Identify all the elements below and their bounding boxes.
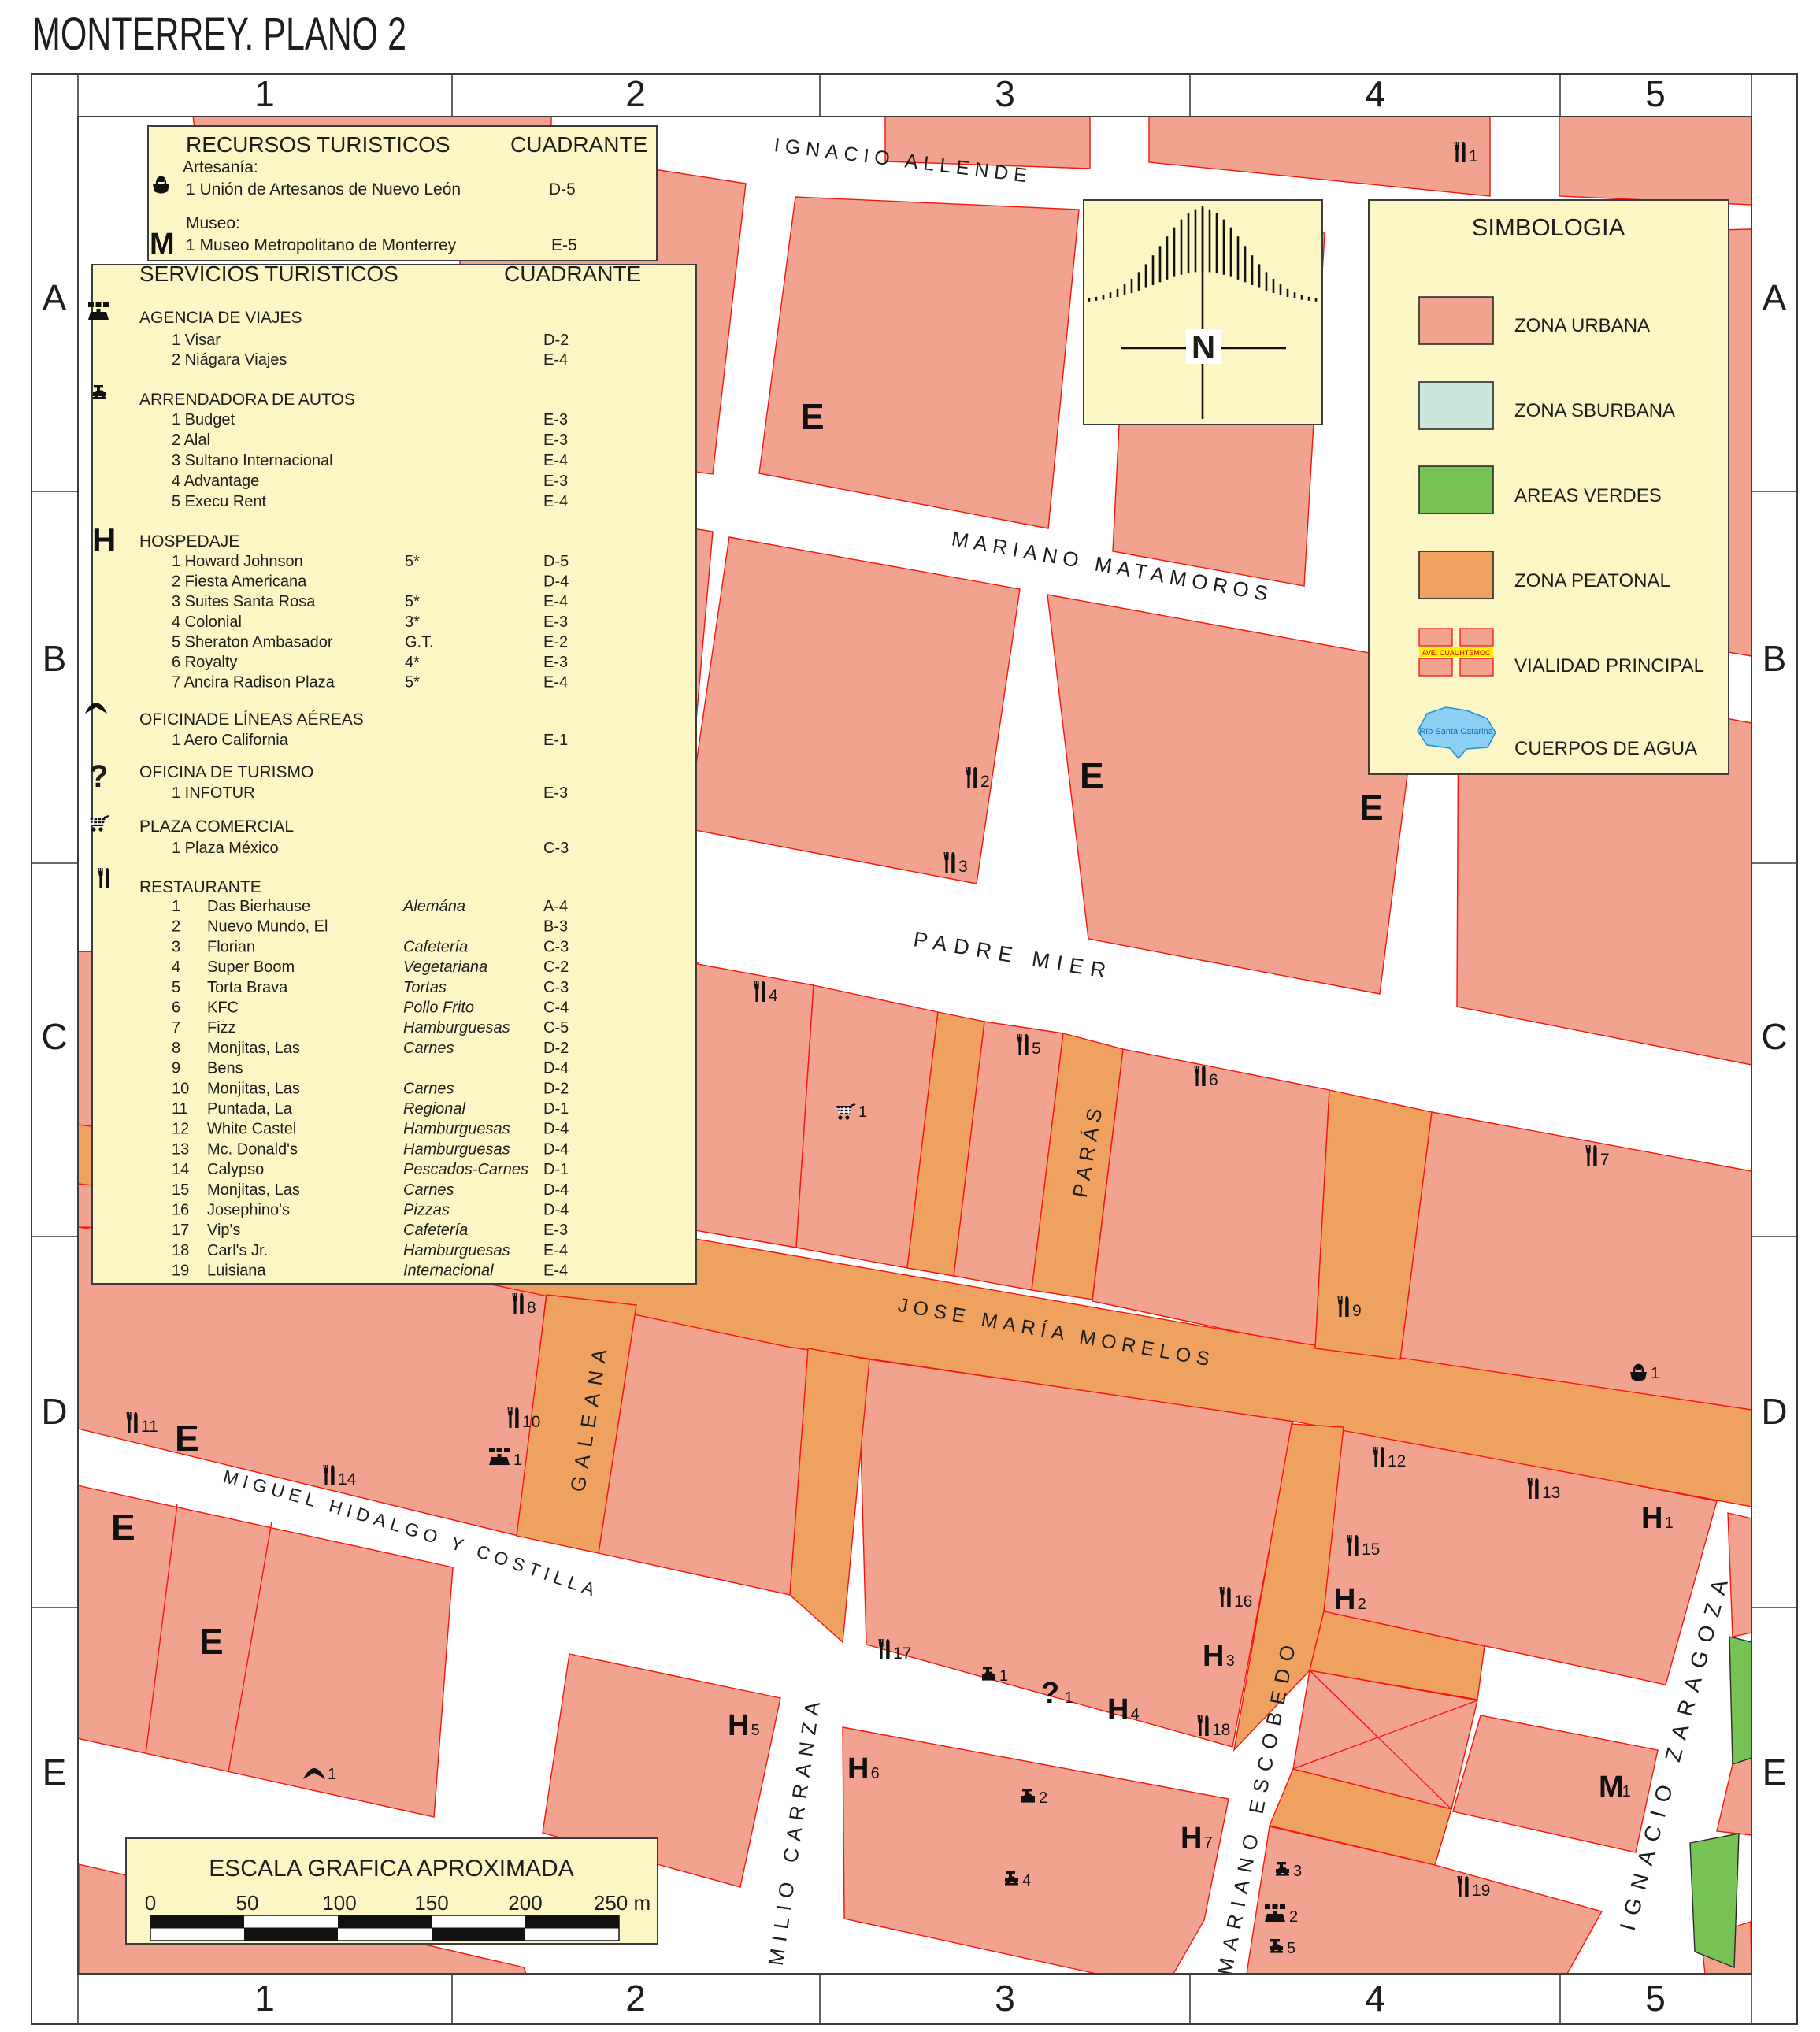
svg-text:16: 16: [172, 1202, 189, 1219]
svg-text:OFICINADE LÍNEAS AÉREAS: OFICINADE LÍNEAS AÉREAS: [139, 710, 364, 729]
svg-text:1: 1: [1665, 1515, 1674, 1532]
svg-text:5*: 5*: [405, 674, 420, 692]
svg-text:E-3: E-3: [543, 473, 568, 490]
svg-text:H: H: [1181, 1822, 1202, 1855]
svg-text:Museo:: Museo:: [186, 214, 240, 232]
svg-text:D-2: D-2: [543, 332, 569, 349]
svg-text:KFC: KFC: [207, 999, 239, 1017]
svg-text:18: 18: [172, 1242, 189, 1259]
svg-text:D-4: D-4: [543, 1121, 569, 1138]
svg-text:AREAS VERDES: AREAS VERDES: [1514, 485, 1662, 506]
svg-text:4 Colonial: 4 Colonial: [172, 614, 242, 631]
svg-text:13: 13: [1542, 1484, 1560, 1502]
svg-text:N: N: [1192, 328, 1215, 365]
svg-text:ZONA PEATONAL: ZONA PEATONAL: [1514, 570, 1670, 591]
svg-text:4: 4: [769, 987, 778, 1005]
svg-text:7: 7: [172, 1019, 180, 1036]
svg-text:Cafetería: Cafetería: [403, 1222, 468, 1239]
svg-text:1: 1: [254, 1978, 275, 2019]
svg-text:E: E: [175, 1418, 199, 1459]
svg-text:Pescados-Carnes: Pescados-Carnes: [403, 1161, 528, 1178]
svg-text:RECURSOS TURISTICOS: RECURSOS TURISTICOS: [186, 132, 450, 157]
svg-text:50: 50: [236, 1891, 259, 1915]
svg-text:15: 15: [1362, 1541, 1380, 1559]
svg-text:SERVICIOS TURISTICOS: SERVICIOS TURISTICOS: [139, 261, 398, 286]
svg-text:1 Aero California: 1 Aero California: [172, 732, 289, 749]
svg-text:Florian: Florian: [207, 938, 255, 955]
svg-text:H: H: [1334, 1583, 1355, 1616]
svg-text:19: 19: [1472, 1882, 1490, 1900]
svg-text:6: 6: [172, 999, 180, 1017]
svg-text:Josephino's: Josephino's: [207, 1202, 290, 1219]
svg-text:Monjitas, Las: Monjitas, Las: [207, 1181, 300, 1199]
svg-text:14: 14: [172, 1161, 189, 1178]
svg-text:7: 7: [1600, 1151, 1610, 1169]
svg-text:4: 4: [1131, 1706, 1140, 1723]
svg-text:Monjitas, Las: Monjitas, Las: [207, 1080, 300, 1097]
svg-text:11: 11: [141, 1418, 158, 1436]
svg-text:ESCALA GRAFICA APROXIMADA: ESCALA GRAFICA APROXIMADA: [209, 1856, 573, 1882]
svg-text:E-3: E-3: [543, 432, 568, 449]
svg-text:5: 5: [172, 979, 180, 996]
svg-text:1: 1: [254, 73, 275, 114]
svg-text:Mc. Donald's: Mc. Donald's: [207, 1140, 298, 1158]
svg-text:M: M: [150, 228, 175, 261]
svg-text:CUADRANTE: CUADRANTE: [504, 261, 641, 286]
svg-text:5: 5: [1645, 73, 1666, 114]
svg-text:8: 8: [527, 1299, 536, 1317]
svg-text:9: 9: [172, 1060, 180, 1077]
svg-text:Das Bierhause: Das Bierhause: [207, 898, 310, 915]
svg-text:1: 1: [1622, 1783, 1631, 1800]
svg-text:C-4: C-4: [543, 999, 569, 1017]
svg-text:10: 10: [172, 1080, 189, 1097]
svg-text:4: 4: [1365, 1978, 1385, 2019]
svg-text:A: A: [1763, 277, 1787, 318]
svg-text:C: C: [1761, 1016, 1787, 1057]
svg-text:1 Budget: 1 Budget: [172, 411, 235, 428]
svg-text:E-5: E-5: [551, 236, 577, 254]
svg-text:5: 5: [1287, 1940, 1295, 1957]
svg-text:E-4: E-4: [543, 351, 568, 369]
svg-text:D-4: D-4: [543, 573, 569, 591]
svg-text:E-4: E-4: [543, 452, 568, 469]
svg-text:12: 12: [172, 1121, 189, 1138]
svg-text:2: 2: [1289, 1908, 1298, 1926]
svg-text:Bens: Bens: [207, 1060, 243, 1077]
svg-text:E-4: E-4: [543, 674, 568, 692]
svg-text:SIMBOLOGIA: SIMBOLOGIA: [1472, 213, 1625, 241]
svg-text:Artesanía:: Artesanía:: [183, 158, 258, 176]
svg-text:A: A: [43, 277, 67, 318]
svg-text:1: 1: [513, 1452, 522, 1469]
svg-text:3: 3: [995, 1978, 1015, 2019]
svg-text:8: 8: [172, 1040, 180, 1057]
svg-text:Hamburguesas: Hamburguesas: [403, 1019, 510, 1036]
svg-text:12: 12: [1388, 1452, 1406, 1470]
svg-text:H: H: [1107, 1693, 1129, 1726]
svg-text:17: 17: [172, 1222, 189, 1239]
svg-text:E-4: E-4: [543, 1263, 568, 1280]
svg-text:Hamburguesas: Hamburguesas: [403, 1140, 510, 1158]
svg-text:White Castel: White Castel: [207, 1121, 296, 1138]
svg-text:5 Sheraton Ambasador: 5 Sheraton Ambasador: [172, 633, 333, 651]
svg-text:E: E: [43, 1752, 67, 1793]
svg-text:Calypso: Calypso: [207, 1161, 264, 1178]
svg-text:HOSPEDAJE: HOSPEDAJE: [139, 532, 239, 551]
svg-text:E-3: E-3: [543, 411, 568, 428]
svg-text:Pollo Frito: Pollo Frito: [403, 999, 474, 1017]
svg-text:200: 200: [508, 1891, 542, 1915]
svg-text:1 Museo Metropolitano de Monte: 1 Museo Metropolitano de Monterrey: [186, 236, 457, 254]
svg-text:D-4: D-4: [543, 1140, 569, 1158]
svg-text:Pizzas: Pizzas: [403, 1202, 450, 1219]
svg-text:E-4: E-4: [543, 1242, 568, 1259]
svg-text:AVE. CUAUHTEMOC: AVE. CUAUHTEMOC: [1422, 649, 1491, 657]
svg-text:2: 2: [172, 918, 180, 936]
svg-text:E-3: E-3: [543, 784, 568, 802]
svg-text:D: D: [1761, 1391, 1787, 1432]
svg-text:Tortas: Tortas: [403, 979, 447, 996]
svg-text:2: 2: [625, 73, 646, 114]
svg-text:1: 1: [172, 898, 180, 915]
svg-text:D-1: D-1: [543, 1100, 569, 1118]
svg-text:Carnes: Carnes: [403, 1080, 454, 1097]
svg-text:Alemána: Alemána: [402, 898, 465, 915]
svg-text:D-5: D-5: [549, 180, 576, 198]
svg-text:D-4: D-4: [543, 1202, 569, 1219]
svg-text:11: 11: [172, 1100, 188, 1118]
svg-text:ZONA URBANA: ZONA URBANA: [1514, 315, 1650, 336]
svg-text:B-3: B-3: [543, 918, 568, 936]
svg-text:OFICINA DE TURISMO: OFICINA DE TURISMO: [139, 763, 313, 781]
svg-text:C-5: C-5: [543, 1019, 569, 1036]
svg-text:3: 3: [995, 73, 1015, 114]
svg-text:2 Fiesta Americana: 2 Fiesta Americana: [172, 573, 307, 591]
svg-text:3: 3: [172, 938, 180, 955]
svg-text:100: 100: [322, 1891, 356, 1915]
svg-text:5 Execu Rent: 5 Execu Rent: [172, 493, 267, 510]
svg-text:C: C: [41, 1016, 67, 1057]
svg-text:Fizz: Fizz: [207, 1019, 236, 1036]
svg-text:E: E: [199, 1621, 224, 1662]
svg-text:19: 19: [172, 1263, 189, 1280]
svg-text:1: 1: [328, 1766, 336, 1783]
svg-text:6 Royalty: 6 Royalty: [172, 654, 237, 671]
svg-text:C-3: C-3: [543, 938, 569, 955]
svg-text:E-3: E-3: [543, 1222, 568, 1239]
svg-text:2: 2: [1358, 1596, 1366, 1613]
svg-text:1: 1: [1065, 1689, 1073, 1707]
svg-text:E: E: [800, 396, 825, 437]
svg-text:Internacional: Internacional: [403, 1263, 494, 1280]
svg-text:2: 2: [1039, 1789, 1047, 1807]
svg-text:16: 16: [1234, 1593, 1252, 1611]
svg-text:H: H: [1641, 1502, 1662, 1535]
svg-text:14: 14: [338, 1470, 357, 1489]
svg-text:Vegetariana: Vegetariana: [403, 959, 487, 976]
svg-text:E: E: [111, 1507, 135, 1548]
svg-text:18: 18: [1212, 1721, 1230, 1739]
svg-text:3 Suites Santa Rosa: 3 Suites Santa Rosa: [172, 593, 316, 610]
svg-text:1 INFOTUR: 1 INFOTUR: [172, 784, 255, 802]
svg-text:17: 17: [893, 1645, 911, 1663]
svg-text:Cafetería: Cafetería: [403, 938, 468, 955]
svg-text:Nuevo Mundo, El: Nuevo Mundo, El: [207, 918, 328, 936]
svg-text:E: E: [1359, 787, 1384, 828]
svg-text:2: 2: [625, 1978, 646, 2019]
svg-text:5: 5: [751, 1722, 760, 1739]
svg-text:13: 13: [172, 1140, 189, 1158]
svg-text:ZONA SBURBANA: ZONA SBURBANA: [1514, 400, 1675, 421]
svg-text:H: H: [1203, 1640, 1224, 1673]
svg-text:B: B: [1763, 638, 1787, 679]
svg-text:150: 150: [414, 1891, 448, 1915]
svg-text:0: 0: [145, 1891, 156, 1915]
svg-text:2 Alal: 2 Alal: [172, 432, 210, 449]
svg-text:D: D: [41, 1391, 67, 1432]
svg-text:15: 15: [172, 1181, 189, 1199]
svg-text:D-1: D-1: [543, 1161, 569, 1178]
svg-text:Torta Brava: Torta Brava: [207, 979, 288, 996]
svg-text:E-2: E-2: [543, 633, 568, 651]
svg-text:3: 3: [1293, 1863, 1302, 1880]
svg-text:AGENCIA DE VIAJES: AGENCIA DE VIAJES: [139, 309, 302, 327]
svg-text:D-2: D-2: [543, 1040, 569, 1057]
svg-text:Super Boom: Super Boom: [207, 959, 295, 976]
svg-text:1: 1: [858, 1103, 867, 1121]
svg-text:6: 6: [871, 1765, 880, 1782]
svg-text:A-4: A-4: [543, 898, 568, 915]
svg-text:1 Howard Johnson: 1 Howard Johnson: [172, 553, 303, 570]
svg-text:D-2: D-2: [543, 1080, 569, 1097]
svg-text:E-4: E-4: [543, 493, 568, 510]
svg-text:Hamburguesas: Hamburguesas: [403, 1242, 510, 1259]
svg-text:?: ?: [89, 759, 108, 794]
svg-text:D-4: D-4: [543, 1060, 569, 1077]
svg-text:4 Advantage: 4 Advantage: [172, 473, 259, 490]
svg-text:C-2: C-2: [543, 959, 569, 976]
svg-text:C-3: C-3: [543, 840, 569, 857]
svg-text:10: 10: [522, 1413, 540, 1431]
svg-text:7: 7: [1204, 1834, 1213, 1852]
svg-text:3 Sultano Internacional: 3 Sultano Internacional: [172, 452, 333, 469]
svg-text:?: ?: [1041, 1677, 1059, 1710]
svg-text:D-4: D-4: [543, 1181, 569, 1199]
svg-text:E-4: E-4: [543, 593, 568, 610]
svg-text:5: 5: [1032, 1040, 1041, 1058]
svg-text:VIALIDAD PRINCIPAL: VIALIDAD PRINCIPAL: [1514, 655, 1704, 677]
svg-text:2 Niágara Viajes: 2 Niágara Viajes: [172, 351, 287, 369]
svg-text:CUADRANTE: CUADRANTE: [510, 132, 647, 157]
svg-text:Carl's Jr.: Carl's Jr.: [207, 1242, 268, 1259]
svg-text:Luisiana: Luisiana: [207, 1263, 266, 1280]
svg-text:Carnes: Carnes: [403, 1181, 454, 1199]
svg-text:1: 1: [1651, 1365, 1659, 1382]
svg-text:CUERPOS DE AGUA: CUERPOS DE AGUA: [1514, 738, 1697, 759]
svg-text:1 Unión de Artesanos de Nuevo: 1 Unión de Artesanos de Nuevo León: [186, 180, 461, 198]
svg-text:Vip's: Vip's: [207, 1222, 240, 1239]
svg-text:2: 2: [980, 773, 990, 791]
svg-text:H: H: [847, 1752, 869, 1785]
svg-text:Regional: Regional: [403, 1100, 466, 1118]
svg-text:Río Santa Catarina: Río Santa Catarina: [1419, 727, 1493, 736]
svg-text:H: H: [728, 1709, 749, 1742]
svg-text:5: 5: [1645, 1978, 1666, 2019]
svg-text:E-3: E-3: [543, 614, 568, 631]
svg-text:PLAZA COMERCIAL: PLAZA COMERCIAL: [139, 818, 294, 836]
svg-text:1 Visar: 1 Visar: [172, 332, 221, 349]
svg-text:M: M: [1599, 1771, 1624, 1804]
svg-text:4: 4: [1022, 1872, 1031, 1889]
svg-text:3*: 3*: [405, 614, 420, 631]
svg-text:4: 4: [172, 959, 180, 976]
svg-text:3: 3: [1226, 1652, 1235, 1670]
svg-text:1: 1: [999, 1667, 1008, 1685]
svg-text:7 Ancira Radison Plaza: 7 Ancira Radison Plaza: [172, 674, 335, 692]
svg-text:5*: 5*: [405, 593, 420, 610]
svg-text:Puntada, La: Puntada, La: [207, 1100, 293, 1118]
svg-text:E-1: E-1: [543, 732, 568, 749]
svg-text:RESTAURANTE: RESTAURANTE: [139, 878, 261, 896]
svg-text:Carnes: Carnes: [403, 1040, 454, 1057]
svg-text:H: H: [92, 521, 116, 558]
svg-text:E: E: [1763, 1752, 1787, 1793]
svg-text:MONTERREY. PLANO 2: MONTERREY. PLANO 2: [32, 9, 406, 60]
svg-text:ARRENDADORA DE AUTOS: ARRENDADORA DE AUTOS: [139, 391, 355, 409]
svg-text:1: 1: [1469, 147, 1478, 165]
svg-text:Hamburguesas: Hamburguesas: [403, 1121, 510, 1138]
svg-text:250 m: 250 m: [594, 1891, 651, 1915]
svg-text:G.T.: G.T.: [405, 633, 434, 651]
svg-text:4*: 4*: [405, 654, 420, 671]
svg-text:3: 3: [958, 858, 968, 876]
svg-text:1 Plaza México: 1 Plaza México: [172, 840, 279, 857]
svg-text:C-3: C-3: [543, 979, 569, 996]
svg-text:4: 4: [1365, 73, 1385, 114]
svg-text:E: E: [1080, 755, 1104, 796]
svg-text:5*: 5*: [405, 553, 420, 570]
svg-text:9: 9: [1352, 1302, 1362, 1320]
svg-text:Monjitas, Las: Monjitas, Las: [207, 1040, 300, 1057]
svg-text:D-5: D-5: [543, 553, 569, 570]
svg-text:6: 6: [1209, 1071, 1218, 1089]
svg-text:B: B: [43, 638, 67, 679]
svg-text:E-3: E-3: [543, 654, 568, 671]
